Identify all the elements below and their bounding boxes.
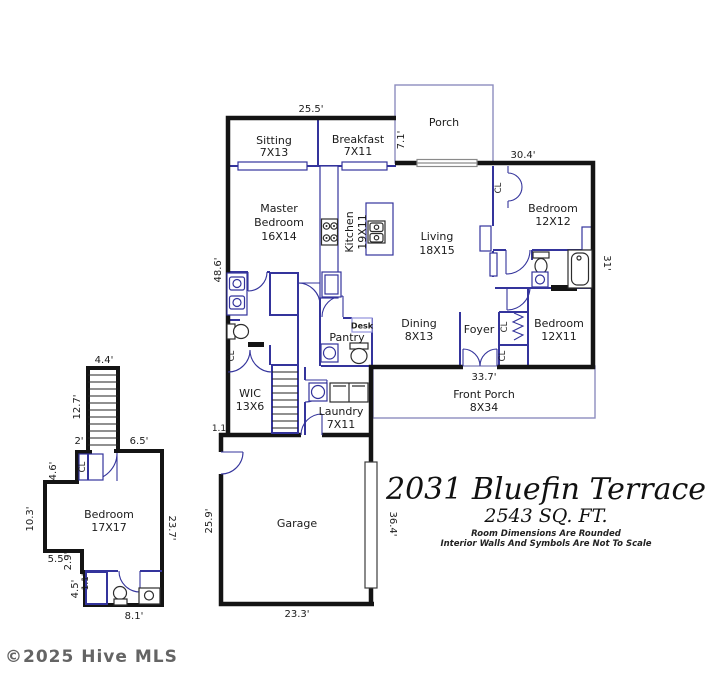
closet-label: CL [78, 461, 88, 472]
square-footage: 2543 SQ. FT. [483, 505, 607, 527]
laundry-fixtures [309, 383, 368, 402]
desk-label: Desk [351, 322, 374, 331]
toilet-icon [114, 587, 127, 600]
dim-label: 12.7' [72, 394, 83, 419]
closet-label: CL [227, 350, 237, 361]
hall-bath-fixtures [532, 250, 592, 288]
room-label-wic: WIC [239, 387, 261, 400]
garage-door [365, 462, 377, 588]
dim-label: 4.5' [70, 580, 81, 599]
svg-text:17X17: 17X17 [91, 521, 127, 534]
stove-icon [322, 219, 338, 245]
room-label-bedroom-12x12: Bedroom [528, 202, 578, 215]
copyright-watermark: ©2025 Hive MLS [5, 647, 178, 667]
bathtub-icon [568, 250, 592, 288]
dim-label: 2.9' [63, 552, 74, 571]
window [417, 160, 477, 167]
dim-label: 33.7' [471, 372, 496, 383]
room-label-garage: Garage [277, 517, 318, 530]
pantry-fixtures [321, 343, 368, 364]
dim-label: 1.1 [212, 424, 226, 434]
dim-label: 23.3' [284, 609, 309, 620]
opening-breakfast [342, 162, 387, 170]
dim-label: 30.4' [510, 150, 535, 161]
stairs-upper [272, 365, 298, 433]
room-label-bedroom-17x17: Bedroom [84, 508, 134, 521]
dim-label: 31' [601, 255, 612, 270]
floorplan-page: 25.5' Sitting 7X13 Breakfast 7X11 Porch … [0, 0, 720, 689]
svg-text:12X12: 12X12 [535, 215, 571, 228]
dim-label: 25.5' [298, 104, 323, 115]
toilet-icon [533, 252, 549, 258]
svg-text:18X15: 18X15 [419, 244, 455, 257]
dim-label: 23.7' [166, 515, 177, 540]
opening-sitting [238, 162, 307, 170]
room-label-dining: Dining [401, 317, 437, 330]
title-block: 2031 Bluefin Terrace 2543 SQ. FT. Room D… [385, 472, 706, 549]
dim-label: 4.4' [95, 355, 114, 366]
dim-label: 48.6' [213, 257, 224, 282]
room-label-pantry: Pantry [329, 331, 365, 344]
dim-label: 1.1' [81, 574, 91, 591]
svg-text:7X13: 7X13 [260, 146, 289, 159]
closet-label: CL [498, 350, 508, 361]
svg-text:8X34: 8X34 [470, 401, 499, 414]
svg-text:16X14: 16X14 [261, 230, 297, 243]
lower-bath-fixtures [86, 572, 160, 605]
dim-label: 2' [74, 436, 83, 447]
svg-text:7X11: 7X11 [327, 418, 356, 431]
living-niche [480, 226, 491, 251]
closet-label: CL [500, 321, 510, 332]
dim-label: 7.1' [396, 131, 407, 150]
dim-label: 36.4' [387, 511, 398, 536]
room-label-front-porch: Front Porch [453, 388, 515, 401]
dim-label: 10.3' [25, 506, 36, 531]
room-label-living: Living [421, 230, 454, 243]
address-title: 2031 Bluefin Terrace [385, 472, 706, 507]
pocket-door [248, 342, 264, 347]
room-label-bedroom-12x11: Bedroom [534, 317, 584, 330]
dim-label: 6.5' [130, 436, 149, 447]
svg-text:Bedroom: Bedroom [254, 216, 304, 229]
room-label-kitchen: Kitchen 19X11 [343, 211, 369, 252]
closet-label: CL [494, 182, 504, 193]
master-bath [227, 273, 298, 339]
room-label-porch: Porch [429, 116, 459, 129]
room-label-laundry: Laundry [319, 405, 364, 418]
island-sink-icon [368, 221, 385, 243]
dim-label: 25.9' [204, 508, 215, 533]
stairs-lower [88, 368, 118, 452]
svg-text:Kitchen: Kitchen [343, 211, 356, 252]
dim-label: 8.1' [125, 611, 144, 622]
room-label-foyer: Foyer [464, 323, 495, 336]
svg-text:7X11: 7X11 [344, 145, 373, 158]
dim-label: 4.6' [48, 462, 59, 481]
hall-niche [490, 253, 497, 276]
svg-text:13X6: 13X6 [236, 400, 265, 413]
svg-text:12X11: 12X11 [541, 330, 577, 343]
room-label-master-bedroom: Master [260, 202, 298, 215]
disclaimer-line2: Interior Walls And Symbols Are Not To Sc… [440, 539, 651, 549]
svg-text:19X11: 19X11 [356, 214, 369, 250]
disclaimer-line1: Room Dimensions Are Rounded [471, 529, 622, 539]
floorplan-drawing: 25.5' Sitting 7X13 Breakfast 7X11 Porch … [0, 0, 720, 689]
shower-icon [270, 273, 298, 315]
svg-text:8X13: 8X13 [405, 330, 434, 343]
washer-dryer-icon [330, 383, 368, 402]
